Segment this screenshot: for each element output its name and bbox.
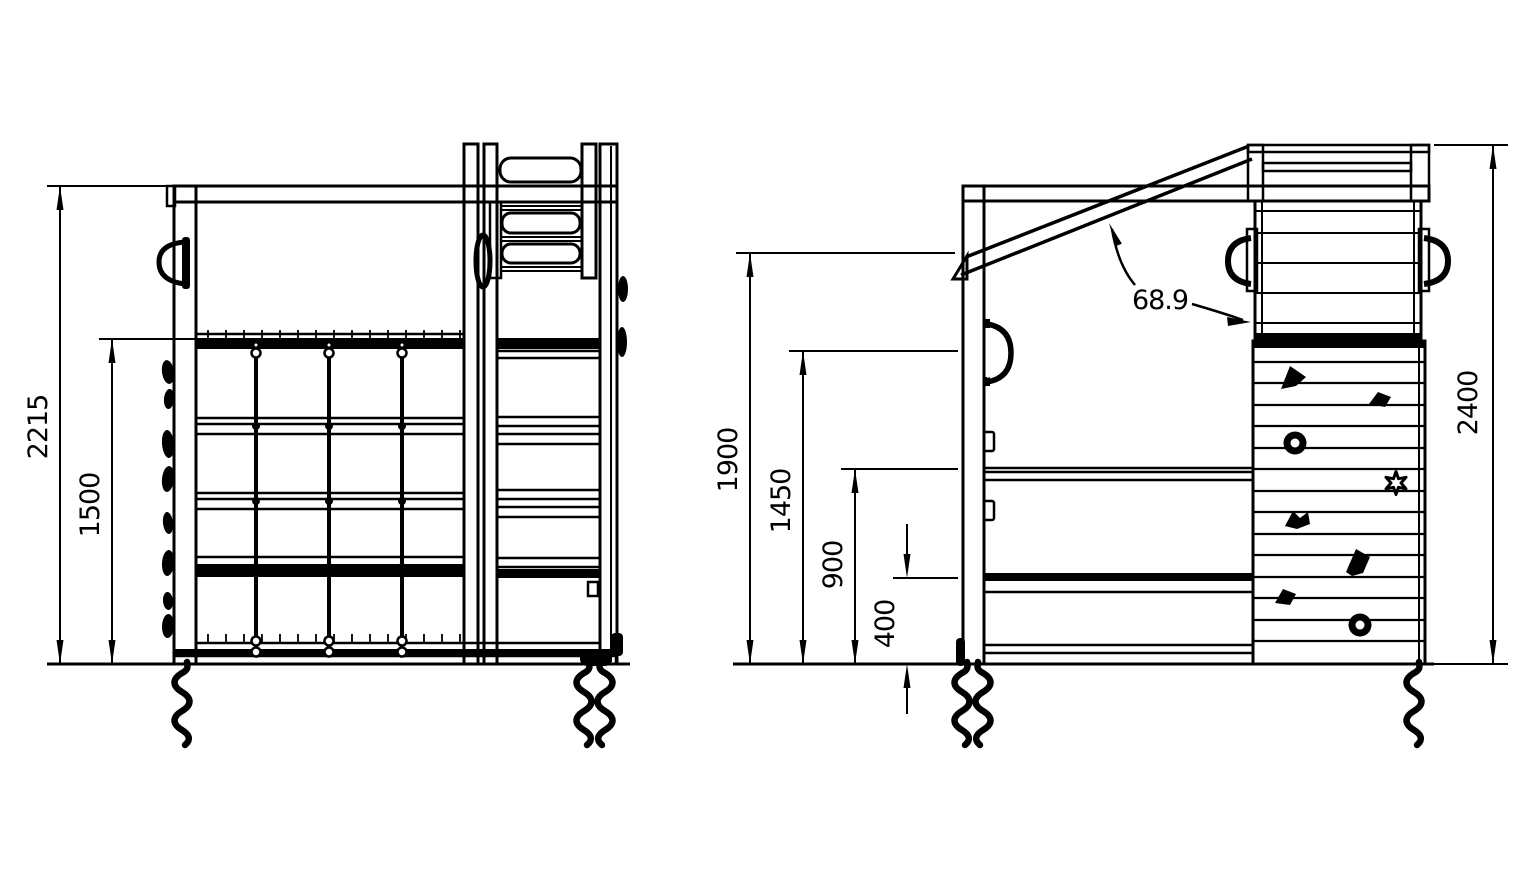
anchor-screw-left [175, 662, 190, 745]
board-handle-right [1419, 229, 1448, 291]
dim-label-1500: 1500 [75, 473, 106, 538]
dim-label-1900: 1900 [713, 428, 744, 493]
ladder-top-bar [497, 338, 600, 349]
anchor-screw-right-b [598, 662, 613, 745]
rung-bar-1 [502, 213, 580, 233]
dimension-rail-400: 400 [870, 524, 958, 714]
dim-label-2215: 2215 [23, 395, 54, 460]
rung-bar-2 [502, 244, 580, 263]
anchor-screw-right-a [577, 662, 592, 745]
post-ring-handle [983, 319, 1011, 386]
dim-label-400: 400 [870, 600, 901, 649]
climbing-wall [1253, 341, 1425, 664]
technical-drawing-page: 2215 1500 [0, 0, 1536, 869]
wall-edge-holds [611, 276, 628, 656]
dim-label-2400: 2400 [1453, 371, 1484, 436]
rail3-lad-a [497, 490, 600, 499]
top-rung [500, 158, 581, 182]
net-post [464, 144, 478, 664]
cleat-upper [985, 432, 994, 451]
dimension-handle-height: 1450 [766, 351, 958, 664]
diagonal-brace [953, 146, 1252, 279]
hold-v [1285, 511, 1310, 529]
front-beam [963, 186, 1429, 201]
post-anchor-stub [956, 638, 965, 666]
anchor-screw-post-b [976, 662, 991, 745]
anchor-cap-right [580, 650, 612, 666]
dimension-overall-height: 2400 [1453, 145, 1497, 664]
ladder-top-bar2 [497, 351, 600, 358]
rail4-lad-a [497, 558, 600, 567]
rail4-hook [588, 582, 598, 596]
dimension-net-height: 1500 [75, 339, 198, 664]
anchor-screw-wall [1407, 662, 1422, 745]
front-rails [984, 468, 1253, 664]
rail2-lad-b [497, 434, 600, 444]
side-view: 2215 1500 [23, 144, 630, 745]
drawing-canvas: 2215 1500 [0, 0, 1536, 869]
rail2-lad-a [497, 417, 600, 426]
dim-label-1450: 1450 [766, 469, 797, 534]
rung-lines [501, 206, 582, 271]
rail3-lad-b [497, 507, 600, 517]
cleat-lower [985, 501, 994, 520]
wall-edge-post [600, 144, 617, 664]
anchor-screw-post-a [955, 662, 970, 745]
hold-wedge-2 [1346, 549, 1370, 576]
upper-climb-board [1255, 201, 1421, 341]
top-beam [174, 186, 617, 202]
dim-label-angle: 68.9 [1132, 285, 1188, 316]
platform-railing [1248, 145, 1429, 201]
hold-wedge-1 [1281, 366, 1306, 389]
rail4-lad-b [497, 569, 600, 578]
bottom-bar-b [174, 656, 616, 664]
dimension-brace-height: 1900 [713, 253, 955, 664]
dimension-total-height: 2215 [23, 186, 174, 664]
board-handle-left [1228, 229, 1257, 291]
climbing-holds [1275, 366, 1406, 637]
dim-label-900: 900 [818, 541, 849, 590]
rung-plate-right [582, 144, 596, 278]
front-view: 1900 1450 900 400 [713, 145, 1508, 745]
